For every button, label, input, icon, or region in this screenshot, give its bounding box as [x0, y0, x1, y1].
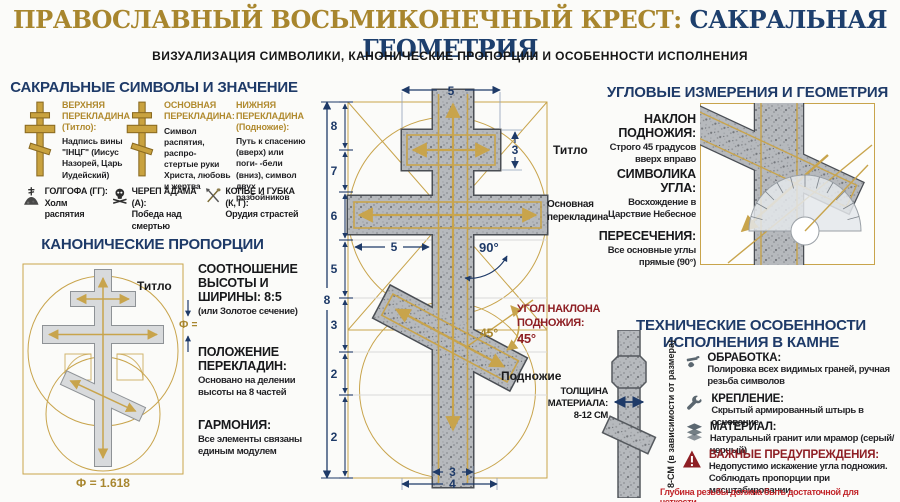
proportion-item-ratio: СООТНОШЕНИЕ ВЫСОТЫ И ШИРИНЫ: 8:5 (или Зо…	[198, 262, 306, 318]
proportions-titlo-label: Титло	[137, 279, 172, 293]
angle-item-title: ПЕРЕСЕЧЕНИЯ:	[596, 229, 696, 243]
angle-item-foot-slope: НАКЛОН ПОДНОЖИЯ: Строго 45 градусов ввер…	[596, 112, 696, 166]
dimension-segments	[339, 102, 353, 478]
glossary-golgotha: ГОЛГОФА (ГГ): Холм распятия	[22, 186, 108, 221]
tech-item-title: КРЕПЛЕНИЕ:	[711, 393, 896, 405]
angles-heading: УГЛОВЫЕ ИЗМЕРЕНИЯ И ГЕОМЕТРИЯ	[600, 84, 895, 101]
foot-angle-note: ПОДНОЖИЯ:	[517, 317, 584, 329]
glossary-spear-sponge: КОПЬЕ И ГУБКА (К, Г): Орудия страстей	[205, 186, 307, 221]
glossary-text: КОПЬЕ И ГУБКА (К, Г): Орудия страстей	[225, 186, 307, 221]
foot-label: Подножие	[501, 369, 562, 383]
glossary-term: ЧЕРЕП АДАМА (А):	[132, 186, 206, 209]
warning-title: ВАЖНЫЕ ПРЕДУПРЕЖДЕНИЯ:	[709, 449, 896, 461]
dim-segment: 8	[331, 119, 338, 133]
tech-item-title: МАТЕРИАЛ:	[710, 421, 896, 433]
symbol-column-title: НИЖНЯЯ ПЕРЕКЛАДИНА	[236, 100, 306, 122]
symbol-column-body: Надпись вины "ІНЦГ" (Иисус Назорей, Царь…	[62, 136, 132, 180]
proportions-diagram: Титло Ф = Ф = 1.618	[15, 256, 197, 492]
dim-segment: 2	[331, 430, 338, 444]
right-angle-label: 90°	[479, 240, 499, 255]
dim-segment: 5	[331, 262, 338, 276]
angle-item-title: НАКЛОН ПОДНОЖИЯ:	[596, 112, 696, 140]
warning-icon	[682, 449, 702, 469]
foot-angle-note: УГОЛ НАКЛОНА	[517, 303, 601, 315]
glossary-desc: Победа над смертью	[132, 209, 206, 232]
proportion-item-title: ПОЛОЖЕНИЕ ПЕРЕКЛАДИН:	[198, 345, 306, 373]
blueprint-diagram: 5 8 8 7 6 5 3 2 2	[315, 80, 615, 502]
glossary-text: ЧЕРЕП АДАМА (А): Победа над смертью	[132, 186, 206, 233]
glossary-term: КОПЬЕ И ГУБКА (К, Г):	[225, 186, 307, 209]
tech-item-processing: ОБРАБОТКА: Полировка всех видимых граней…	[686, 352, 896, 388]
tech-item-title: ОБРАБОТКА:	[707, 352, 896, 364]
proportion-item-title: ГАРМОНИЯ:	[198, 418, 306, 432]
protractor-detail-image	[700, 103, 875, 265]
proportion-item-harmony: ГАРМОНИЯ: Все элементы связаны единым мо…	[198, 418, 306, 458]
warning-line: Недопустимо искажение угла подножия.	[709, 461, 896, 473]
tech-item-body: Полировка всех видимых граней, ручная ре…	[707, 364, 896, 388]
dim-total-height-value: 8	[324, 293, 331, 307]
symbol-column-subtitle: (Титло):	[62, 122, 132, 133]
dim-segment: 2	[331, 367, 338, 381]
angle-item-body: Все основные углы прямые (90°)	[596, 245, 696, 269]
foot-angle-note-value: 45°	[517, 331, 536, 346]
spear-sponge-icon	[205, 186, 221, 205]
gold-cross-icon	[24, 100, 56, 178]
symbol-column-top-bar: ВЕРХНЯЯ ПЕРЕКЛАДИНА (Титло): Надпись вин…	[62, 100, 132, 181]
proportion-item-body: Все элементы связаны единым модулем	[198, 434, 306, 458]
dim-bottom-outer-value: 4	[449, 477, 456, 491]
warning-red-line: Глубина резьбы должна быть достаточной д…	[660, 487, 898, 502]
dim-segment: 6	[331, 209, 338, 223]
symbol-column-body: Символ распятия, распро- стертые руки Хр…	[164, 126, 232, 192]
glossary-skull: ЧЕРЕП АДАМА (А): Победа над смертью	[112, 186, 206, 233]
main-bar-label: Основная	[547, 199, 594, 210]
dim-titlo-value: 3	[512, 143, 519, 157]
thickness-note-vertical: 8-СМ (в зависимости от размера)	[666, 330, 676, 498]
dim-segment: 3	[331, 318, 338, 332]
angle-item-body: Строго 45 градусов вверх вправо	[596, 142, 696, 166]
thickness-label-line: 8-12 СМ	[544, 410, 608, 422]
angle-item-intersections: ПЕРЕСЕЧЕНИЯ: Все основные углы прямые (9…	[596, 229, 696, 269]
angle-item-symbolism: СИМВОЛИКА УГЛА: Восхождение в Царствие Н…	[596, 167, 696, 221]
thickness-label: ТОЛЩИНА МАТЕРИАЛА: 8-12 СМ	[544, 386, 608, 422]
foot-angle-label: 45°	[480, 326, 498, 340]
proportion-item-body: Основано на делении высоты на 8 частей	[198, 375, 306, 399]
glossary-term: ГОЛГОФА (ГГ):	[45, 186, 108, 198]
proportion-item-body: (или Золотое сечение)	[198, 306, 306, 318]
dim-top-width-value: 5	[448, 84, 455, 98]
proportion-item-position: ПОЛОЖЕНИЕ ПЕРЕКЛАДИН: Основано на делени…	[198, 345, 306, 399]
phi-value: Ф = 1.618	[76, 476, 130, 490]
glossary-text: ГОЛГОФА (ГГ): Холм распятия	[45, 186, 108, 221]
thickness-label-line: МАТЕРИАЛА:	[544, 398, 608, 410]
glossary-desc: Холм распятия	[45, 198, 108, 221]
phi-label: Ф =	[179, 319, 197, 331]
symbol-column-main-bar: ОСНОВНАЯ ПЕРЕКЛАДИНА: Символ распятия, р…	[164, 100, 232, 192]
polish-tool-icon	[686, 352, 700, 372]
angle-item-body: Восхождение в Царствие Небесное	[596, 197, 696, 221]
proportion-item-title: СООТНОШЕНИЕ ВЫСОТЫ И ШИРИНЫ: 8:5	[198, 262, 306, 304]
dimension-total-height	[321, 102, 345, 478]
symbol-column-title: ОСНОВНАЯ ПЕРЕКЛАДИНА:	[164, 100, 232, 122]
dim-segment: 7	[331, 164, 338, 178]
page-title-gold: ПРАВОСЛАВНЫЙ ВОСЬМИКОНЕЧНЫЙ КРЕСТ:	[13, 5, 682, 34]
symbols-heading: САКРАЛЬНЫЕ СИМВОЛЫ И ЗНАЧЕНИЕ	[8, 79, 300, 96]
infographic-poster: ПРАВОСЛАВНЫЙ ВОСЬМИКОНЕЧНЫЙ КРЕСТ: САКРА…	[0, 0, 900, 502]
glossary-desc: Орудия страстей	[225, 209, 307, 221]
wrench-icon	[686, 393, 704, 413]
layers-icon	[686, 421, 703, 441]
symbol-column-title: ВЕРХНЯЯ ПЕРЕКЛАДИНА	[62, 100, 132, 122]
titlo-label: Титло	[553, 143, 588, 157]
page-subtitle: ВИЗУАЛИЗАЦИЯ СИМВОЛИКИ, КАНОНИЧЕСКИЕ ПРО…	[0, 49, 900, 63]
symbol-column-subtitle: (Подножие):	[236, 122, 306, 133]
golgotha-icon	[22, 186, 41, 207]
proportions-heading: КАНОНИЧЕСКИЕ ПРОПОРЦИИ	[5, 236, 300, 253]
skull-icon	[112, 186, 128, 206]
gold-cross-icon	[126, 100, 158, 178]
dim-half-width-value: 5	[391, 240, 398, 254]
thickness-label-line: ТОЛЩИНА	[544, 386, 608, 398]
angle-item-title: СИМВОЛИКА УГЛА:	[596, 167, 696, 195]
